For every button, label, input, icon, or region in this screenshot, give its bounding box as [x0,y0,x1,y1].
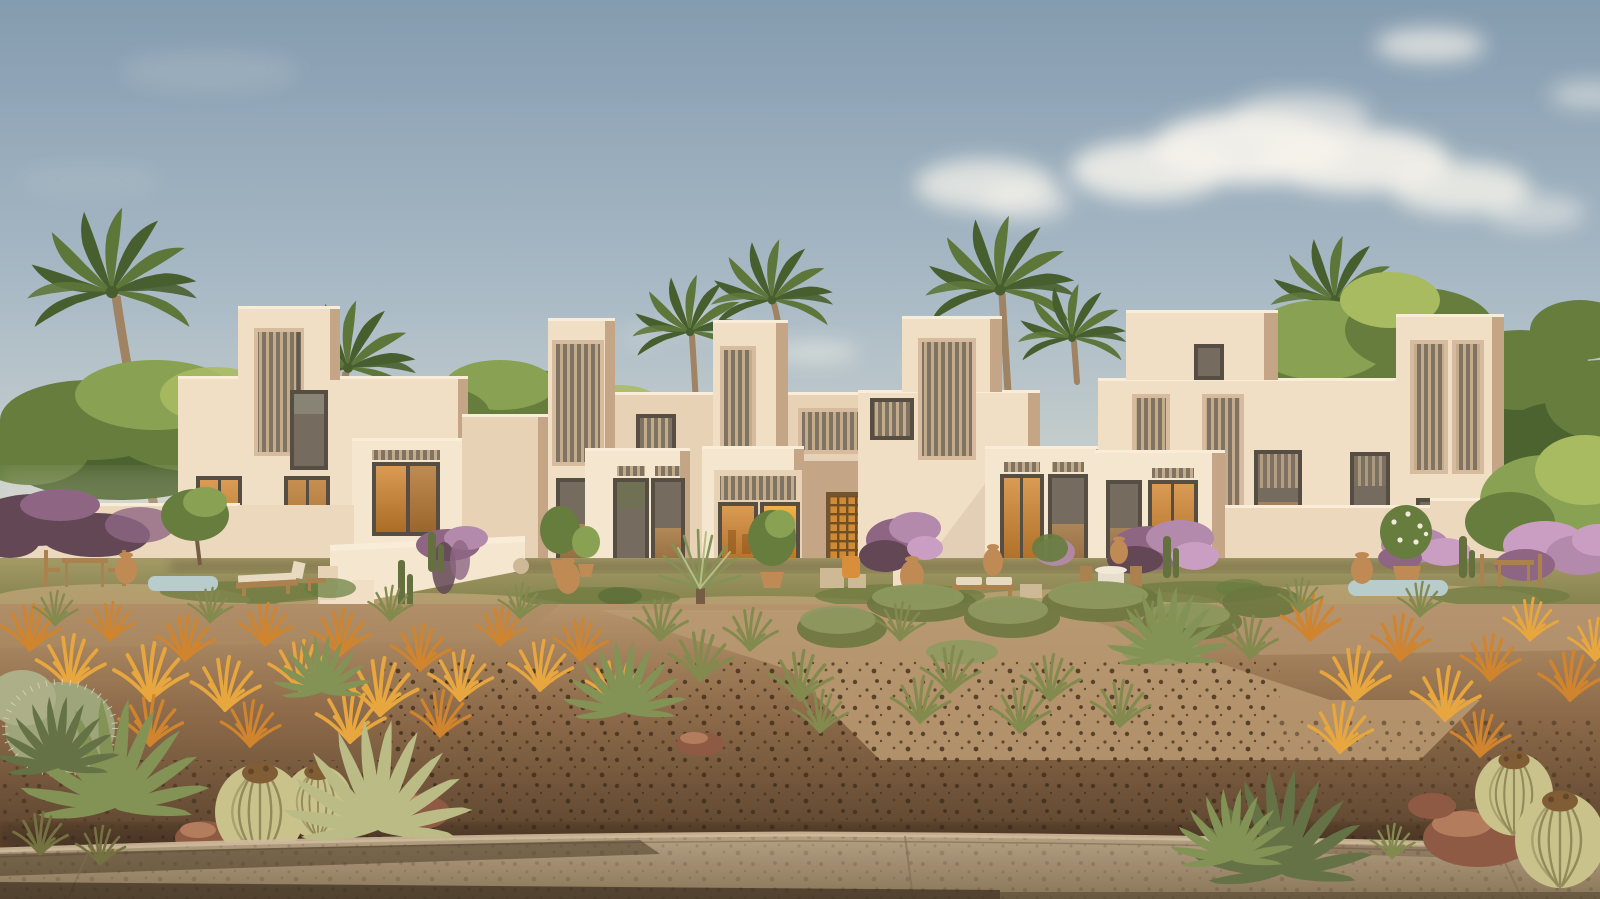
scene-illustration [0,0,1600,899]
rendering-canvas [0,0,1600,899]
warm-light-overlay [0,0,1600,899]
